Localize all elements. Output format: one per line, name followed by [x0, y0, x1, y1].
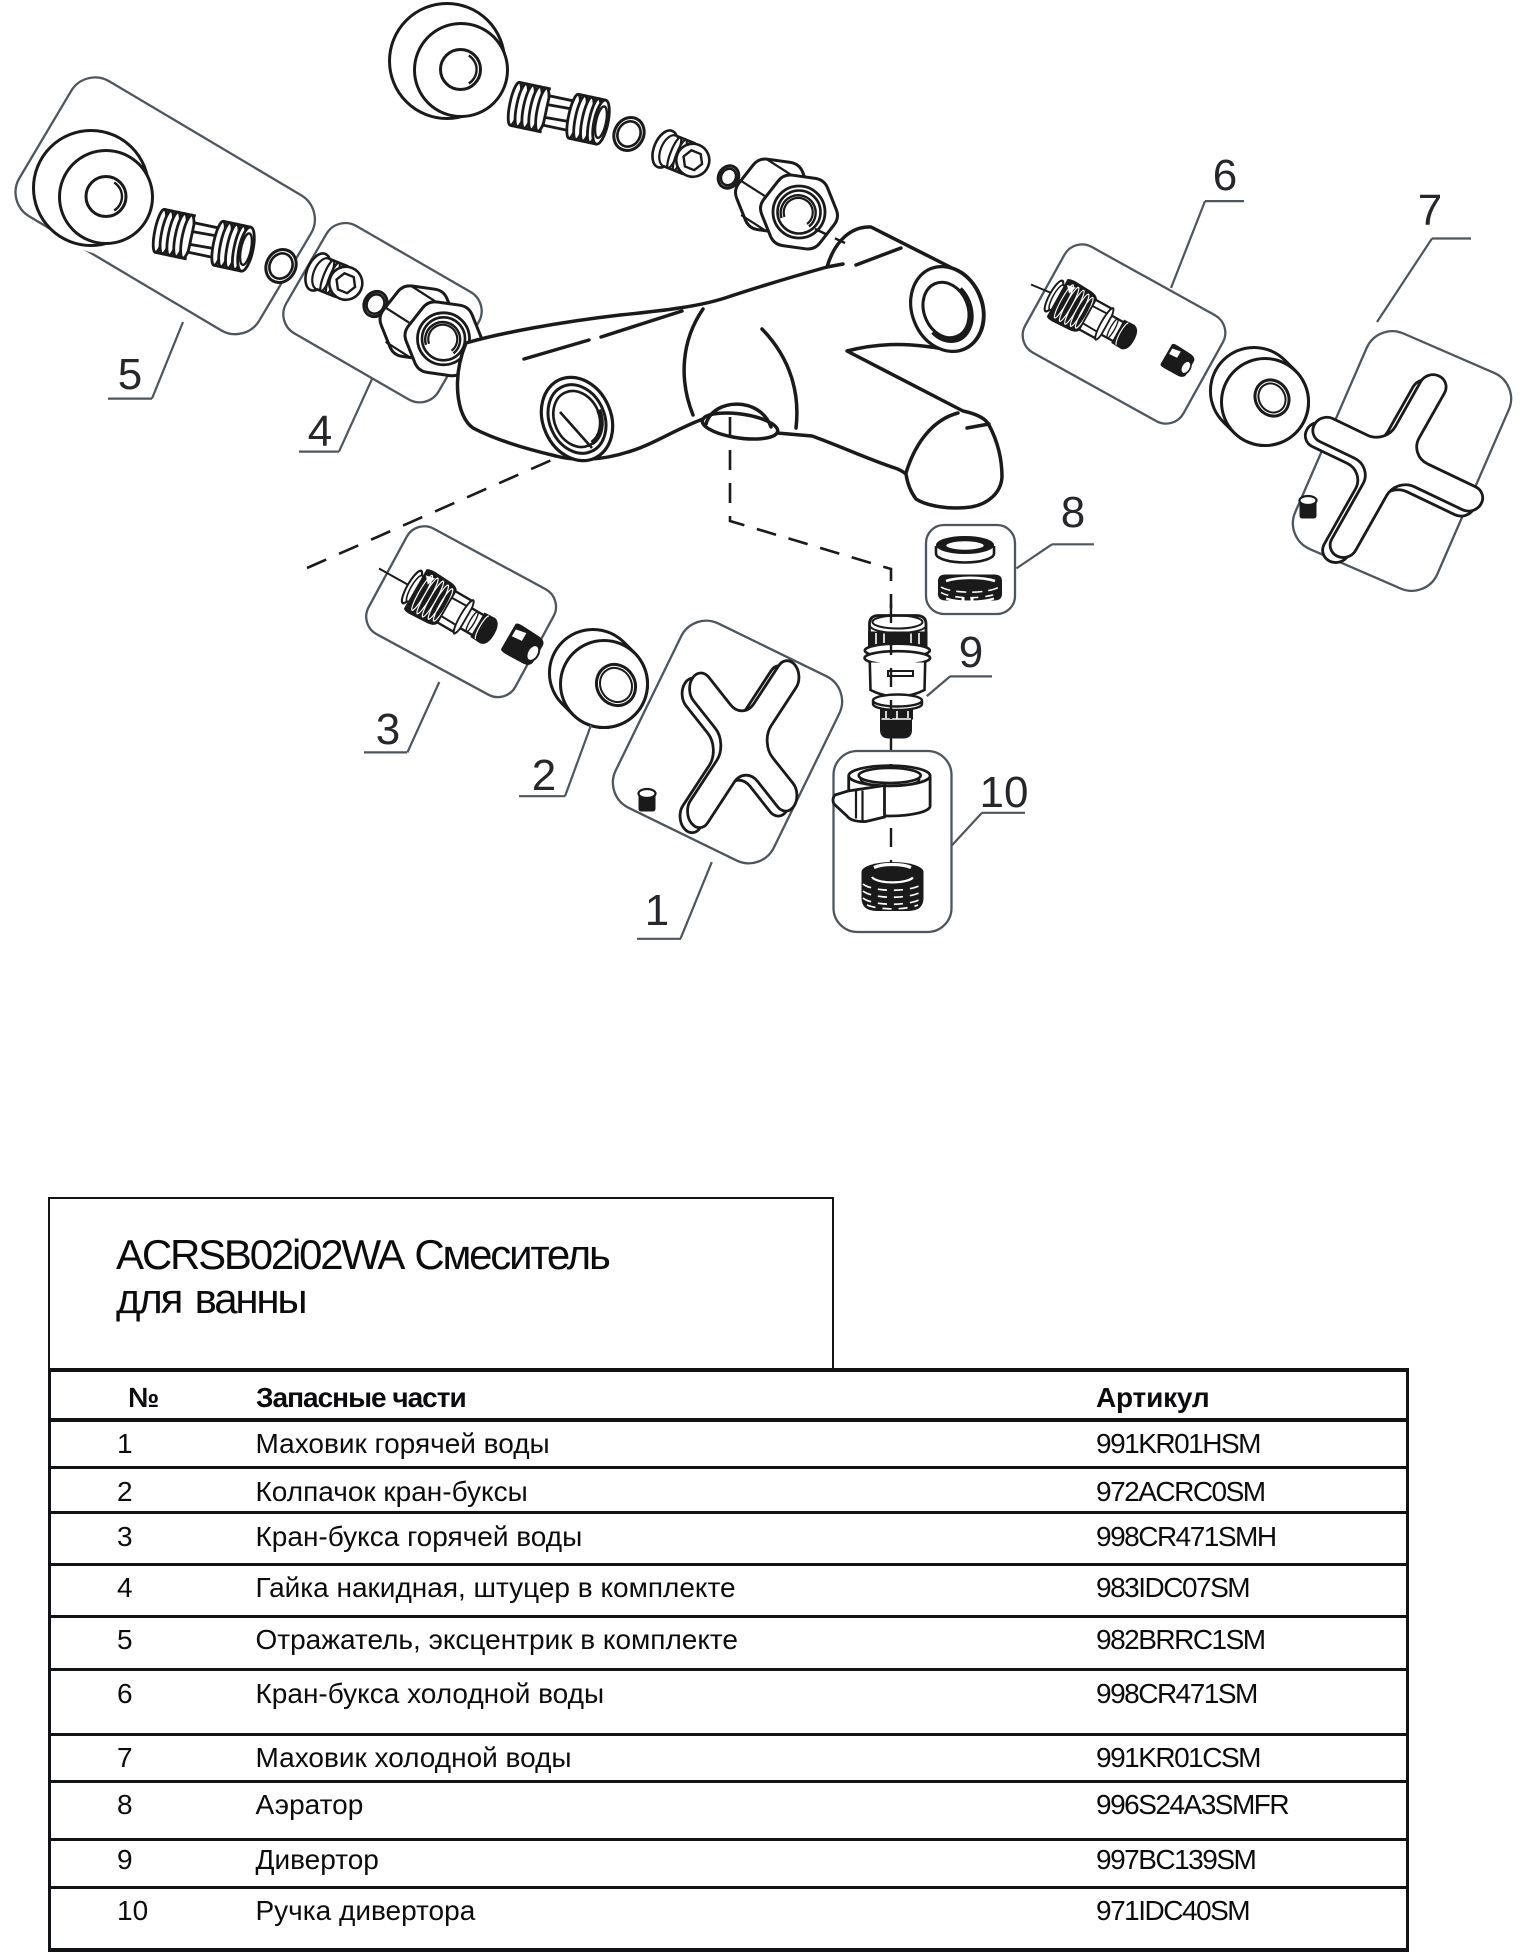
- svg-text:10: 10: [980, 768, 1029, 817]
- svg-text:1: 1: [645, 886, 669, 935]
- svg-text:7: 7: [1418, 186, 1442, 235]
- svg-text:3: 3: [376, 705, 400, 754]
- svg-text:6: 6: [1213, 151, 1237, 200]
- svg-text:4: 4: [308, 407, 332, 456]
- svg-text:8: 8: [1061, 488, 1085, 537]
- svg-text:5: 5: [118, 350, 142, 399]
- svg-text:2: 2: [532, 751, 556, 800]
- svg-text:9: 9: [959, 628, 983, 677]
